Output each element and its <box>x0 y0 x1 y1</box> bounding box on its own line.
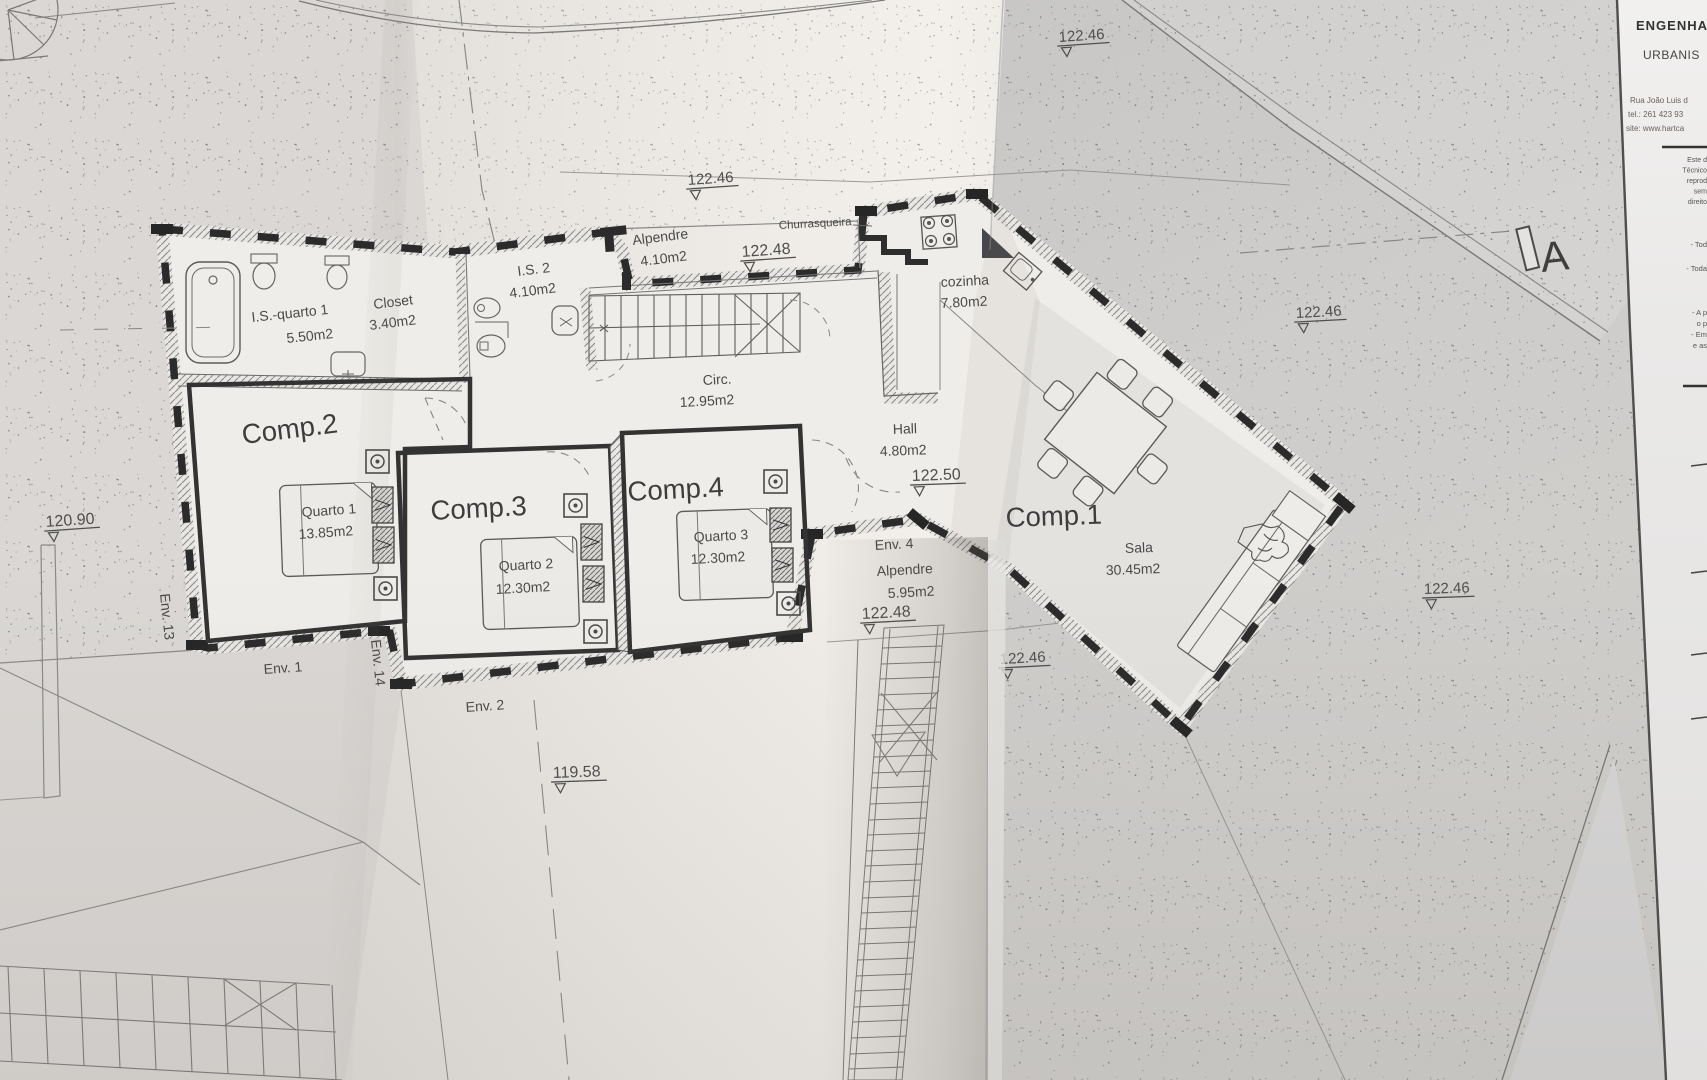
svg-text:direito: direito <box>1688 199 1707 206</box>
svg-text:tel.: 261 423 93: tel.: 261 423 93 <box>1628 110 1684 119</box>
svg-text:URBANIS: URBANIS <box>1643 48 1700 62</box>
svg-text:- Em: - Em <box>1691 330 1707 339</box>
svg-text:e as: e as <box>1693 341 1707 350</box>
svg-text:Rua João Luis d: Rua João Luis d <box>1630 96 1688 105</box>
svg-text:- A p: - A p <box>1692 308 1707 317</box>
svg-text:- Tod: - Tod <box>1690 240 1707 249</box>
svg-text:ENGENHA: ENGENHA <box>1636 18 1707 33</box>
svg-text:reprod: reprod <box>1687 178 1707 185</box>
svg-text:o p: o p <box>1697 319 1707 328</box>
svg-text:- Toda: - Toda <box>1686 264 1707 273</box>
svg-text:Técnico: Técnico <box>1682 168 1707 175</box>
svg-text:Este d: Este d <box>1687 157 1707 164</box>
svg-text:sem: sem <box>1694 189 1707 196</box>
svg-text:site: www.hartca: site: www.hartca <box>1626 124 1685 133</box>
